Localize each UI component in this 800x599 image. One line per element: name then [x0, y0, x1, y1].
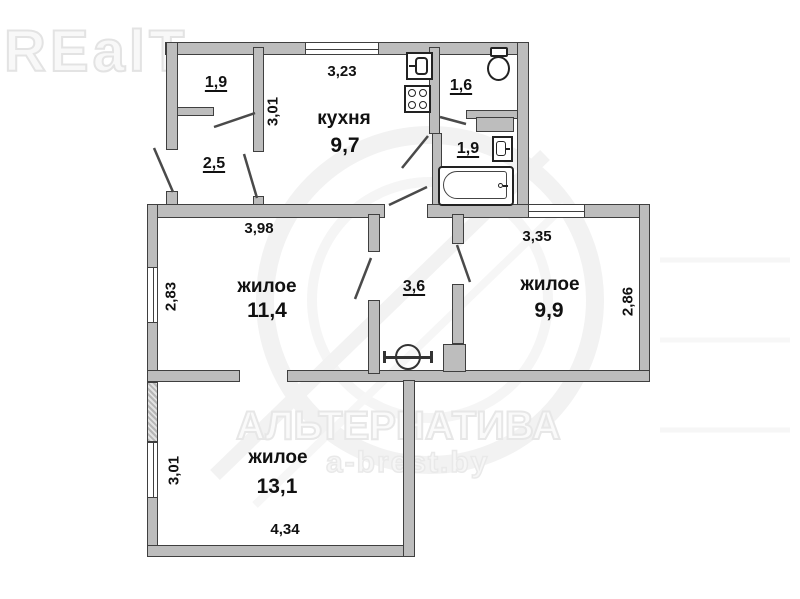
living-bottom-area: 13,1	[217, 475, 337, 499]
dim-living-left-width: 3,98	[229, 220, 289, 237]
bathtub-icon	[438, 166, 514, 206]
wall-middle-bottom-left	[147, 370, 240, 382]
agency-watermark: АЛЬТЕРНАТИВА	[236, 404, 561, 449]
closet-area: 1,9	[186, 74, 246, 92]
stove-icon	[404, 85, 431, 113]
corridor-area: 3,6	[384, 278, 444, 296]
basin-symbol-tick-right	[430, 351, 433, 363]
basin-symbol-tick-left	[383, 351, 386, 363]
kitchen-area: 9,7	[285, 134, 405, 158]
wall-hall-kitchen	[253, 47, 264, 152]
window-living1-left	[147, 267, 158, 323]
floor-plan: REalT АЛЬТЕРНАТИВА a-brest.by	[0, 0, 800, 599]
realt-logo-watermark: REalT	[4, 18, 188, 85]
dim-living-bottom-width: 4,34	[255, 521, 315, 538]
wall-left-outer-top	[166, 42, 178, 150]
swirl-watermark	[0, 0, 800, 599]
wall-middle-bottom-right	[287, 370, 650, 382]
wall-bottom-outer	[147, 545, 415, 557]
wall-corridor-living2-lower	[452, 284, 464, 344]
window-living3-left	[147, 442, 158, 498]
wall-living3-right	[403, 380, 415, 557]
wall-left-outer-bottom-hatched	[147, 382, 158, 442]
wall-wc-bath-block	[476, 117, 514, 132]
basin-symbol-line	[384, 356, 432, 359]
wall-living-corridor-lower	[368, 300, 380, 374]
wall-closet-bottom	[177, 107, 214, 116]
wall-corridor-living2-upper	[452, 214, 464, 244]
hallway-area: 2,5	[184, 155, 244, 173]
window-living2-top	[528, 204, 585, 218]
dim-kitchen-width: 3,23	[312, 63, 372, 80]
dim-living-bottom-depth: 3,01	[166, 441, 183, 501]
dim-kitchen-depth: 3,01	[265, 82, 282, 142]
living-right-area: 9,9	[489, 299, 609, 323]
kitchen-label: кухня	[284, 108, 404, 130]
wall-corridor-pillar	[443, 344, 466, 372]
dim-living-left-depth: 2,83	[163, 267, 180, 327]
dim-living-right-depth: 2,86	[620, 272, 637, 332]
wall-living-corridor-upper	[368, 214, 380, 252]
living-right-label: жилое	[490, 274, 610, 296]
dim-living-right-width: 3,35	[507, 228, 567, 245]
wall-middle-top-left	[147, 204, 385, 218]
wall-right-outer-middle	[639, 204, 650, 382]
living-left-area: 11,4	[207, 299, 327, 323]
sink-icon	[406, 52, 433, 80]
living-bottom-label: жилое	[218, 447, 338, 469]
wc-area: 1,6	[431, 77, 491, 95]
wall-right-outer-top	[517, 42, 529, 210]
living-left-label: жилое	[207, 276, 327, 298]
bathroom-area: 1,9	[438, 140, 498, 158]
window-kitchen-top	[305, 42, 379, 55]
